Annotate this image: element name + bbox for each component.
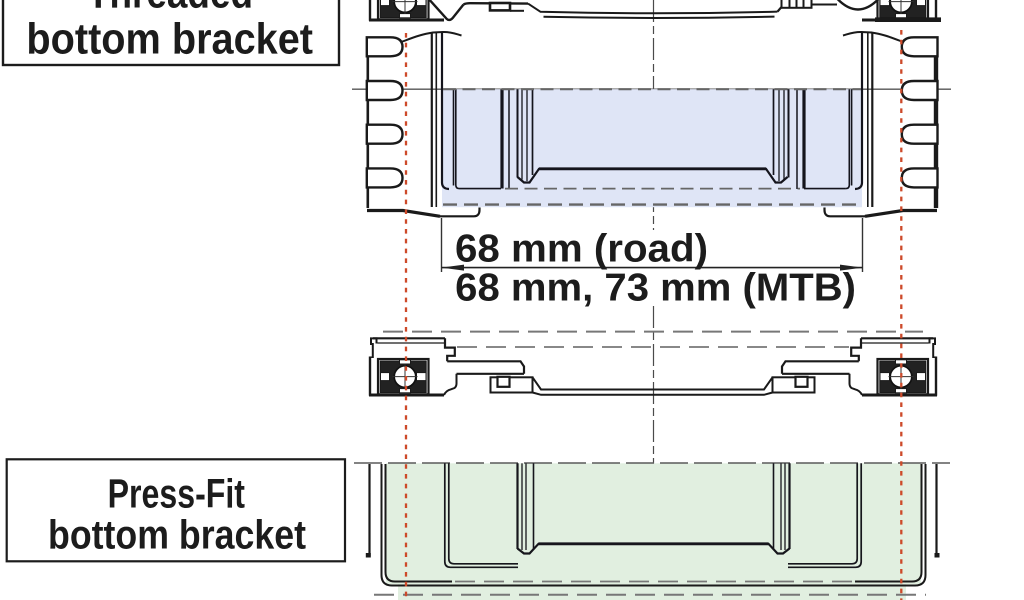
svg-text:bottom bracket: bottom bracket [26,14,313,63]
svg-text:Press-Fit: Press-Fit [108,471,246,517]
svg-text:bottom bracket: bottom bracket [48,511,306,557]
svg-text:68 mm (road): 68 mm (road) [455,227,708,270]
svg-text:68 mm, 73 mm (MTB): 68 mm, 73 mm (MTB) [455,267,856,310]
